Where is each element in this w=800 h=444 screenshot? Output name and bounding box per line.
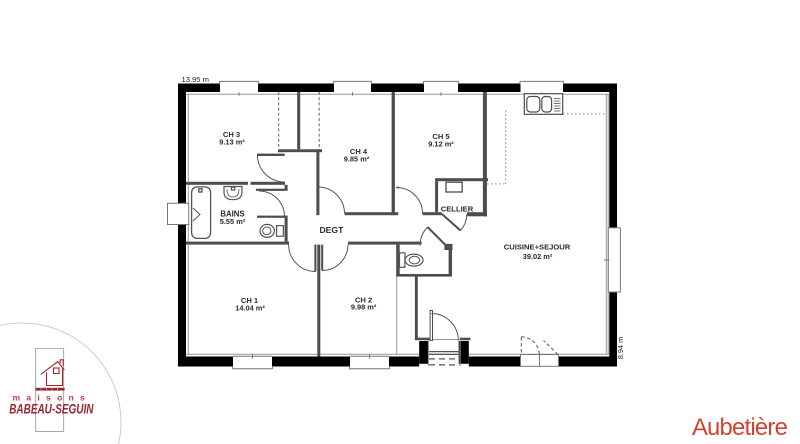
svg-text:5.55 m²: 5.55 m² [220,217,246,226]
svg-text:9.98 m²: 9.98 m² [351,303,377,312]
svg-text:9.13 m²: 9.13 m² [219,137,245,146]
svg-text:39.02 m²: 39.02 m² [523,252,553,261]
svg-text:DEGT: DEGT [319,225,344,235]
svg-text:BABEAU-SEGUIN: BABEAU-SEGUIN [9,401,94,417]
svg-text:CELLIER: CELLIER [441,204,474,213]
svg-text:CUISINE+SEJOUR: CUISINE+SEJOUR [504,243,571,252]
svg-text:9.12 m²: 9.12 m² [428,139,454,148]
svg-text:8.94 m: 8.94 m [616,337,625,359]
svg-text:Aubetière: Aubetière [692,414,788,441]
svg-text:9.85 m²: 9.85 m² [344,154,370,163]
svg-text:14.04 m²: 14.04 m² [235,303,265,312]
svg-text:13.95 m: 13.95 m [182,75,209,84]
